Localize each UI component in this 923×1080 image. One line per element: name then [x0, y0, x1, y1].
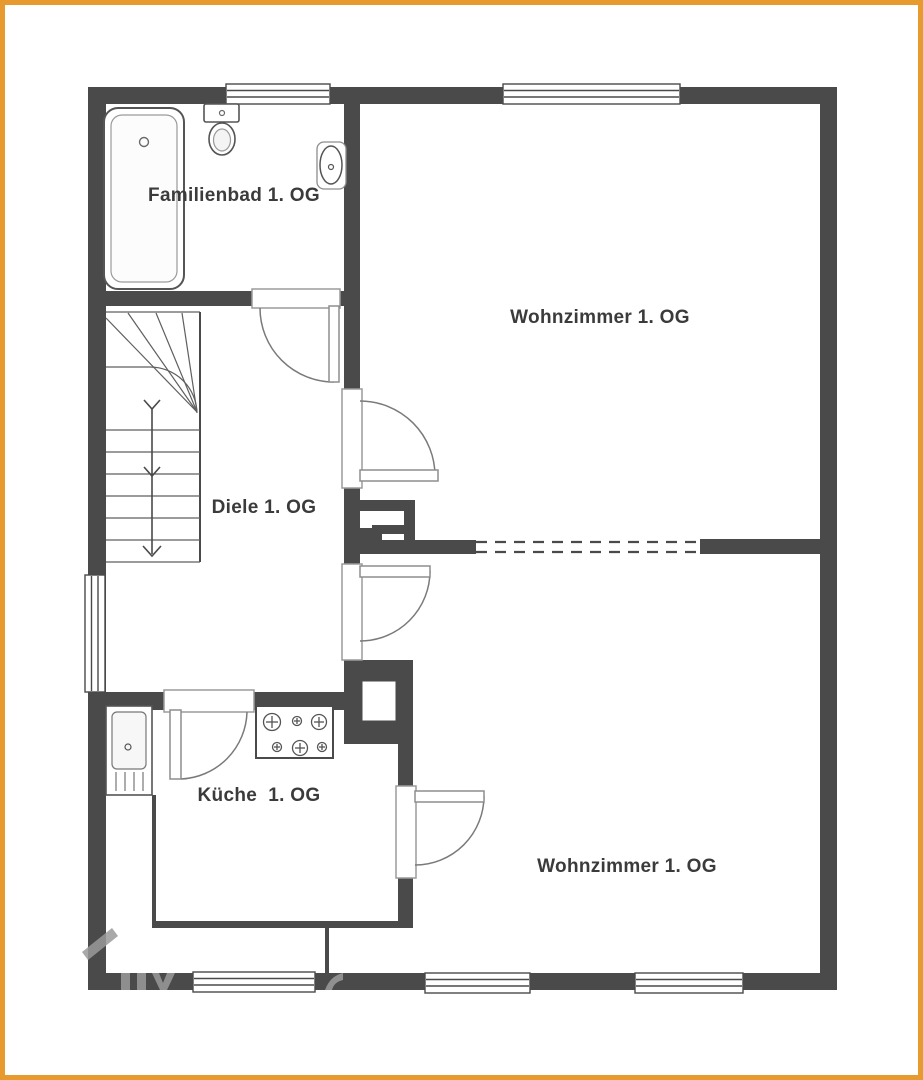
- divider-dashed-opening: [476, 539, 700, 555]
- chimney-icon: [355, 500, 415, 542]
- room-label-diele: Diele 1. OG: [212, 497, 317, 519]
- door-frame-living-bottom: [342, 564, 362, 660]
- wall-exterior-right: [820, 87, 837, 990]
- floorplan-page: Familienbad 1. OG Wohnzimmer 1. OG Diele…: [0, 0, 923, 1080]
- kitchen-sink-icon: [106, 706, 152, 795]
- door-frame-bathroom: [252, 289, 340, 308]
- room-label-wohnzimmer-oben: Wohnzimmer 1. OG: [510, 307, 690, 329]
- room-label-familienbad: Familienbad 1. OG: [148, 185, 320, 207]
- door-living-top: [360, 401, 438, 481]
- floorplan-drawing: [0, 0, 923, 1080]
- stove-icon: [256, 706, 333, 758]
- stairs-direction-arrow: [143, 400, 161, 556]
- wall-hall-right-a: [344, 305, 360, 392]
- door-bathroom: [260, 306, 339, 382]
- wall-divider-left: [360, 540, 476, 554]
- window-bath-top: [226, 84, 330, 104]
- door-living-bottom: [360, 566, 430, 641]
- wall-thin-mid: [325, 928, 329, 973]
- doors: [170, 306, 484, 865]
- wall-divider-right: [700, 539, 820, 554]
- window-living-top: [503, 84, 680, 104]
- wall-bath-right: [344, 104, 360, 305]
- door-kitchen-living: [415, 791, 484, 865]
- window-left-wall: [85, 575, 105, 692]
- window-bottom-mid: [425, 973, 530, 993]
- room-label-kueche: Küche 1. OG: [198, 785, 321, 807]
- window-bottom-left: [193, 972, 315, 992]
- wall-exterior-top: [88, 87, 836, 104]
- wall-thin-left: [152, 795, 156, 921]
- door-frame-kitchen: [164, 690, 254, 712]
- wall-hall-right-b: [344, 485, 360, 568]
- room-label-wohnzimmer-unten: Wohnzimmer 1. OG: [537, 856, 717, 878]
- window-bottom-right: [635, 973, 743, 993]
- staircase-icon: [106, 312, 200, 562]
- washbasin-icon: [317, 142, 346, 189]
- wall-kitchen-bottom-thin: [152, 921, 413, 928]
- duct-shaft-hole: [362, 681, 396, 721]
- toilet-icon: [204, 104, 239, 155]
- door-frame-living-top: [342, 389, 362, 488]
- door-frame-kitchen-living: [396, 786, 416, 878]
- duct-block-top-bar: [362, 660, 413, 678]
- door-kitchen: [170, 710, 247, 779]
